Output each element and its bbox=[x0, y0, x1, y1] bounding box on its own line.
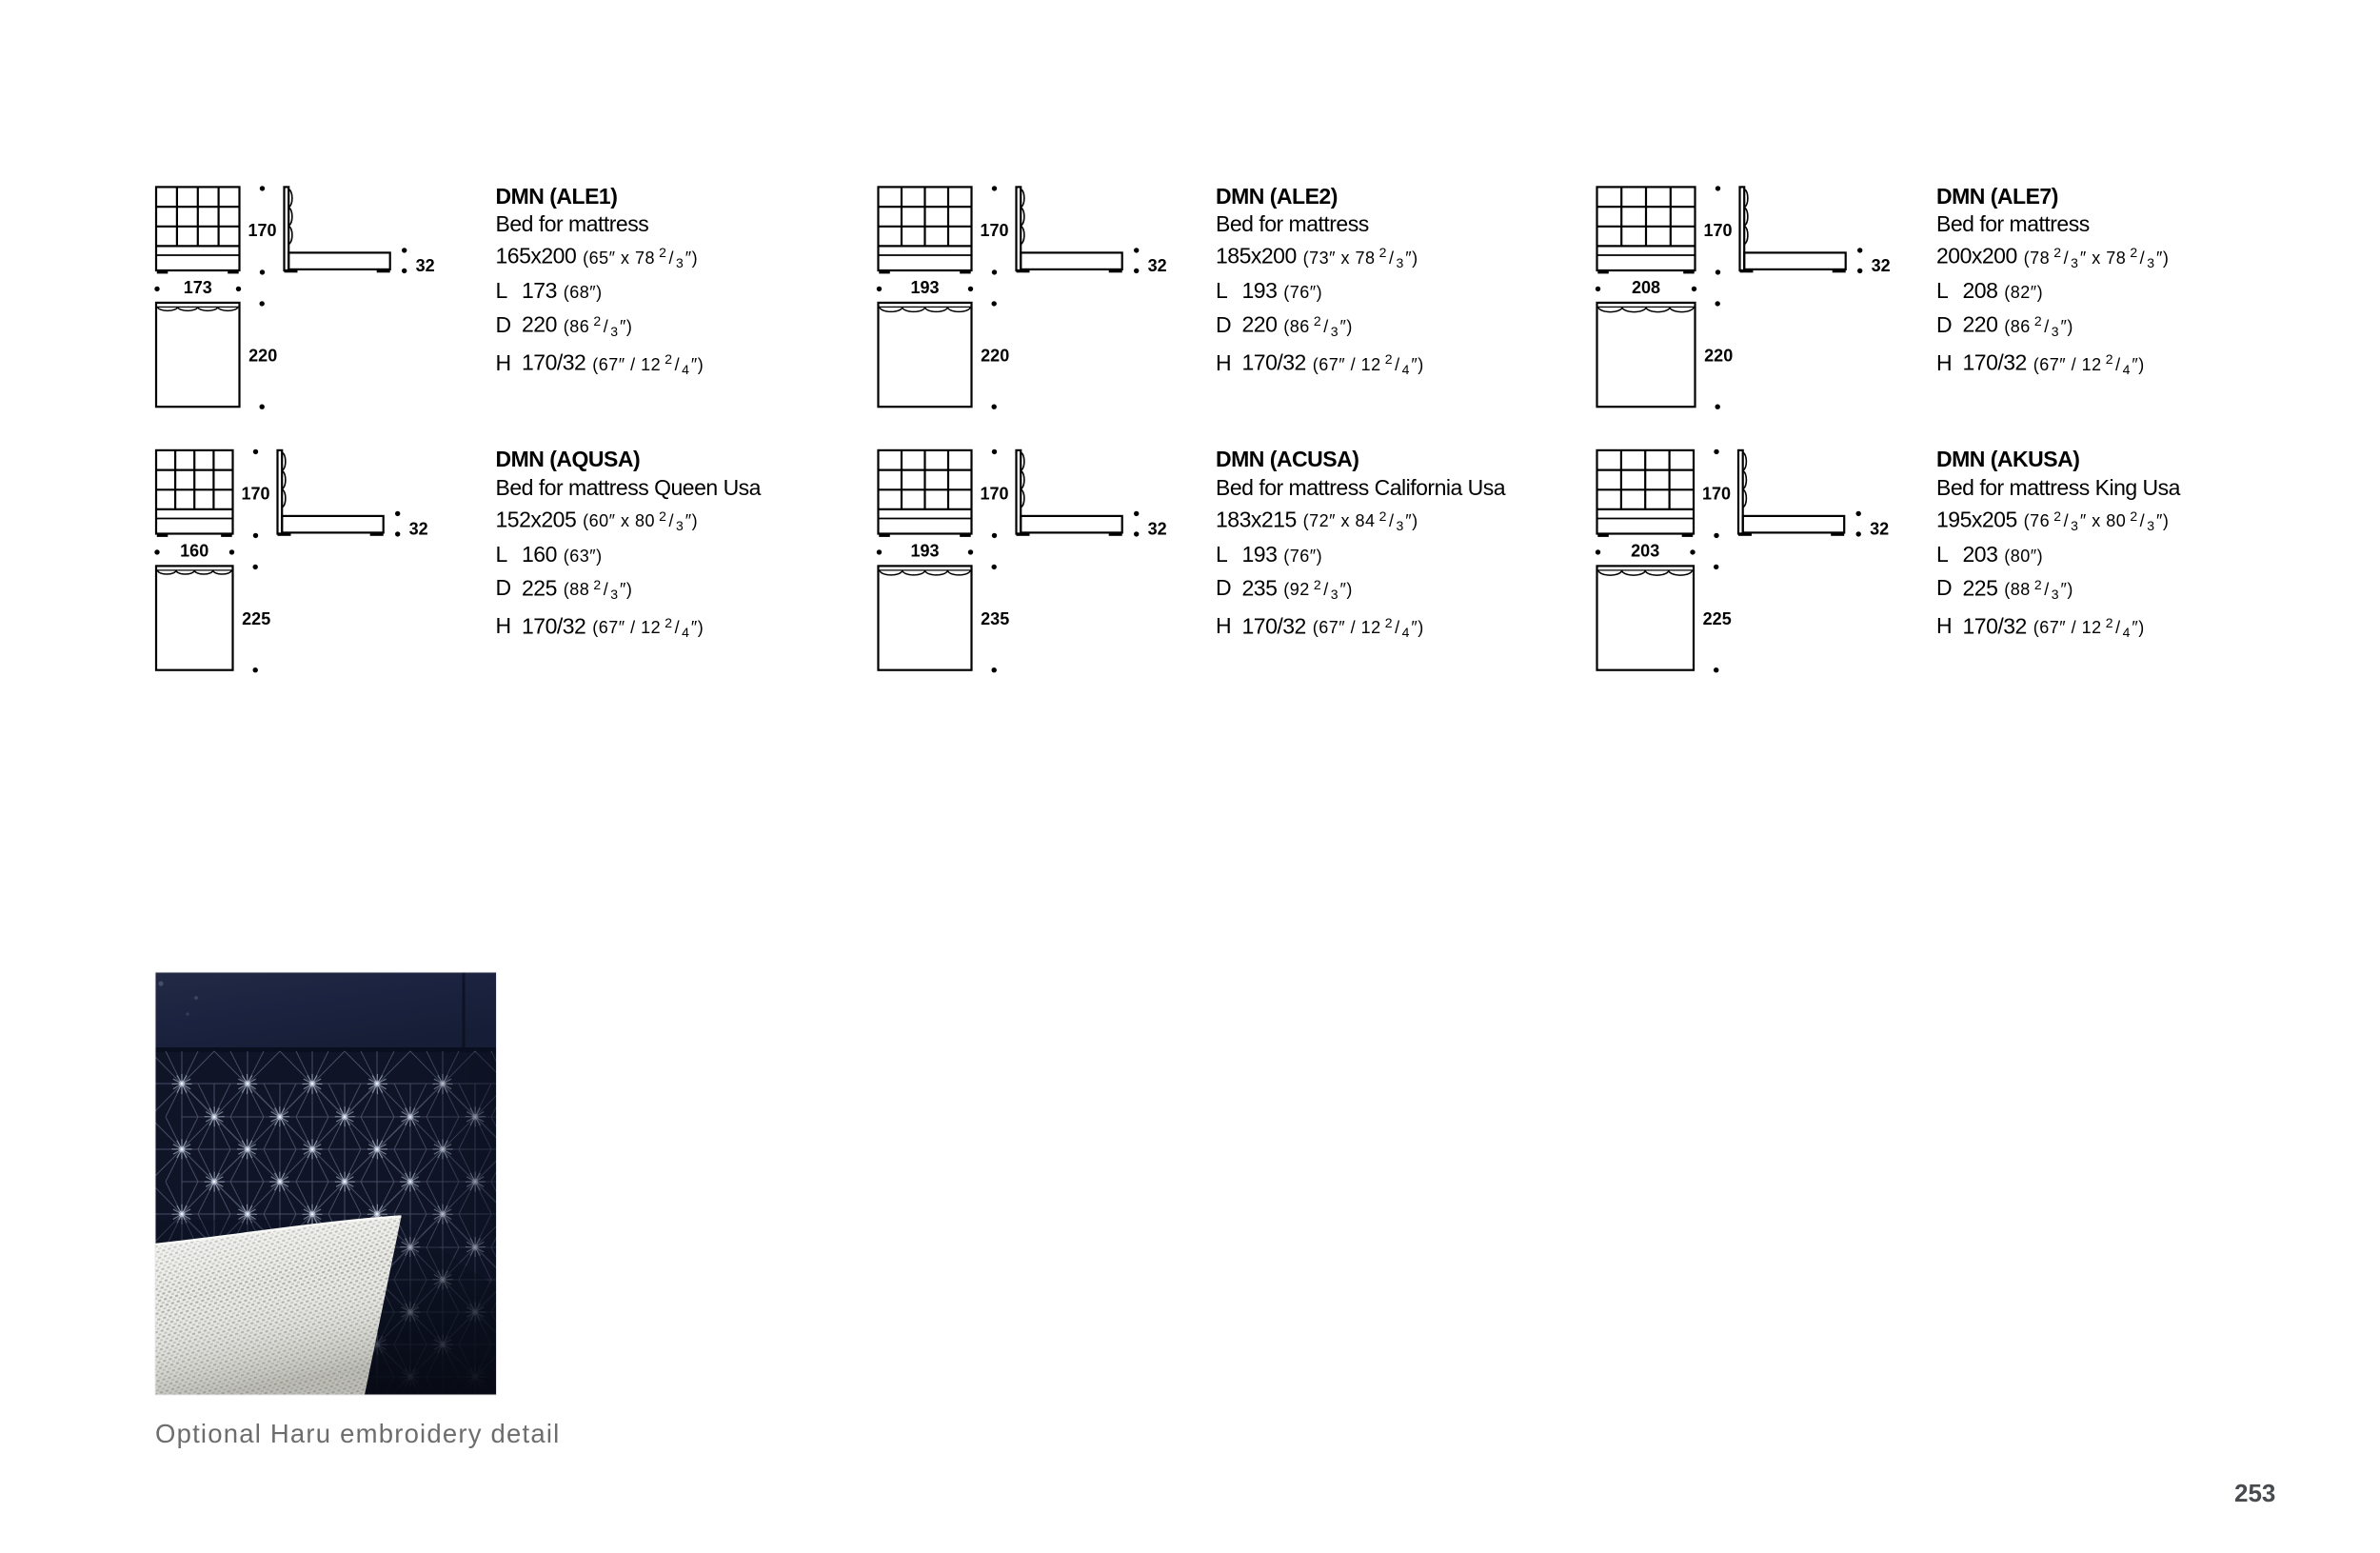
svg-text:32: 32 bbox=[1870, 519, 1889, 538]
svg-text:170: 170 bbox=[248, 221, 276, 240]
svg-text:193: 193 bbox=[910, 278, 939, 297]
svg-text:170: 170 bbox=[1703, 221, 1732, 240]
svg-text:220: 220 bbox=[1704, 346, 1733, 365]
svg-text:235: 235 bbox=[981, 609, 1009, 628]
svg-text:193: 193 bbox=[910, 541, 939, 560]
svg-text:225: 225 bbox=[242, 609, 270, 628]
svg-text:32: 32 bbox=[416, 256, 435, 275]
svg-text:208: 208 bbox=[1632, 278, 1660, 297]
svg-text:170: 170 bbox=[1702, 484, 1731, 503]
svg-text:32: 32 bbox=[409, 519, 428, 538]
svg-text:173: 173 bbox=[184, 278, 212, 297]
svg-text:32: 32 bbox=[1148, 256, 1167, 275]
svg-text:220: 220 bbox=[981, 346, 1009, 365]
svg-text:170: 170 bbox=[980, 221, 1008, 240]
svg-text:170: 170 bbox=[980, 484, 1008, 503]
svg-text:220: 220 bbox=[248, 346, 277, 365]
svg-text:32: 32 bbox=[1148, 519, 1167, 538]
svg-text:170: 170 bbox=[241, 484, 269, 503]
svg-text:225: 225 bbox=[1703, 609, 1732, 628]
svg-text:32: 32 bbox=[1872, 256, 1891, 275]
svg-text:203: 203 bbox=[1631, 541, 1659, 560]
svg-text:160: 160 bbox=[180, 541, 208, 560]
